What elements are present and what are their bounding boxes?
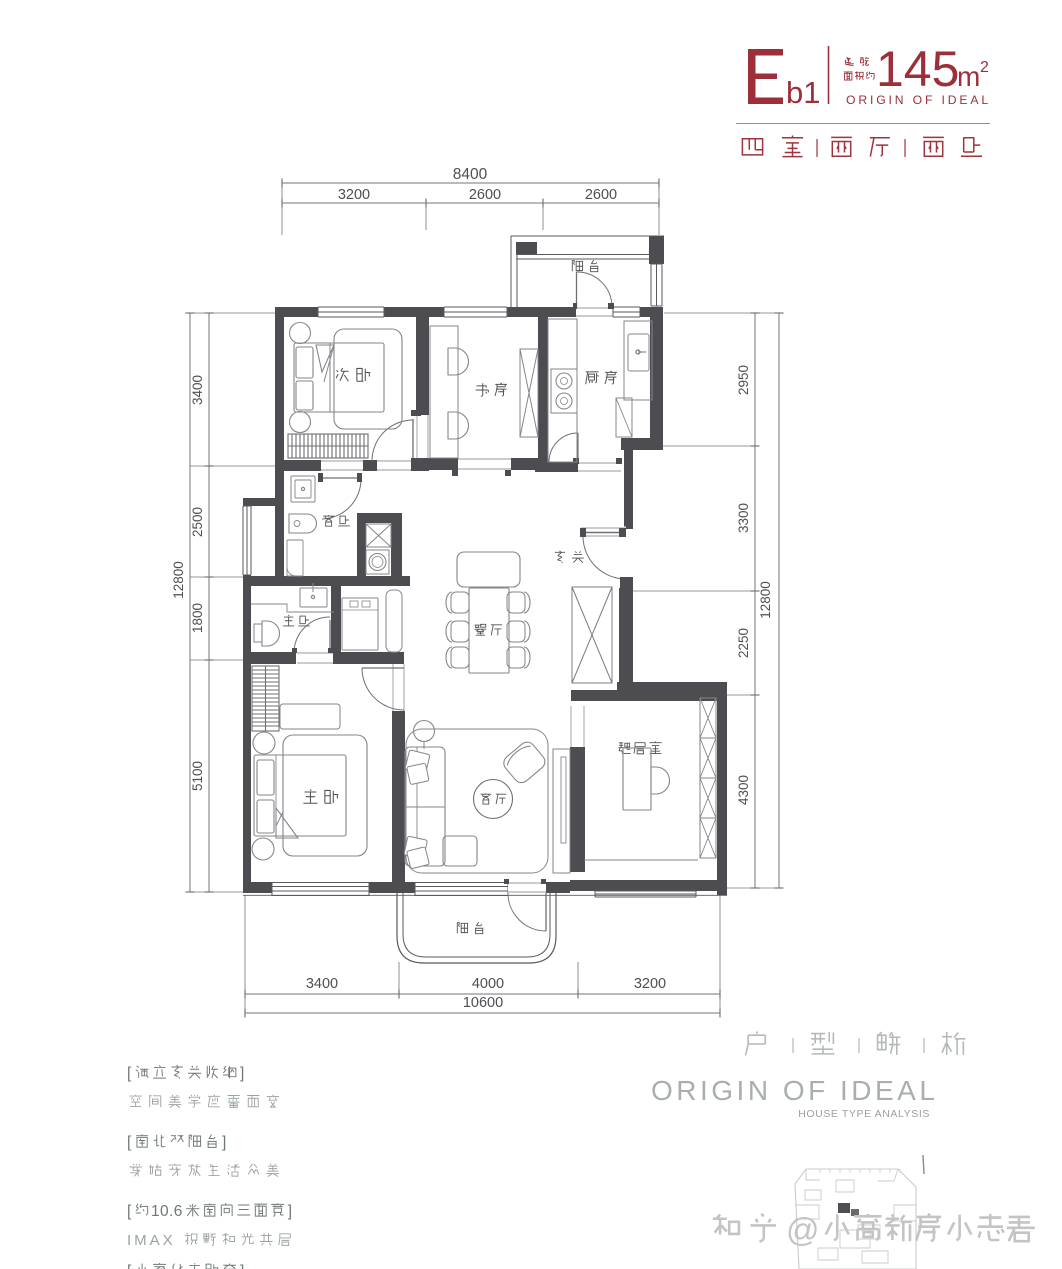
svg-text:1800: 1800 xyxy=(190,603,205,633)
svg-text:m: m xyxy=(957,61,980,92)
svg-text:3300: 3300 xyxy=(736,503,751,533)
svg-text:]: ] xyxy=(288,1203,292,1220)
svg-text:IMAX: IMAX xyxy=(127,1232,176,1249)
svg-text:2600: 2600 xyxy=(585,187,617,203)
svg-text:10.6: 10.6 xyxy=(151,1203,183,1220)
svg-text:ORIGIN OF IDEAL: ORIGIN OF IDEAL xyxy=(846,93,991,107)
svg-text:]: ] xyxy=(240,1263,244,1269)
svg-text:[: [ xyxy=(127,1065,133,1082)
svg-text:5100: 5100 xyxy=(190,761,205,791)
svg-text:[: [ xyxy=(127,1203,132,1220)
svg-text:2600: 2600 xyxy=(469,187,501,203)
svg-text:2950: 2950 xyxy=(736,365,751,395)
svg-text:145: 145 xyxy=(876,41,959,97)
svg-text:2: 2 xyxy=(980,59,989,76)
svg-text:]: ] xyxy=(240,1065,244,1082)
svg-text:10600: 10600 xyxy=(463,995,503,1011)
svg-text:3400: 3400 xyxy=(306,976,338,992)
svg-text:]: ] xyxy=(222,1134,226,1151)
svg-text:3200: 3200 xyxy=(338,187,370,203)
svg-text:8400: 8400 xyxy=(453,166,488,183)
svg-text:4000: 4000 xyxy=(472,976,504,992)
svg-text:12800: 12800 xyxy=(171,561,186,599)
svg-text:ORIGIN OF IDEAL: ORIGIN OF IDEAL xyxy=(651,1075,938,1106)
svg-text:@: @ xyxy=(786,1211,820,1248)
svg-text:HOUSE TYPE ANALYSIS: HOUSE TYPE ANALYSIS xyxy=(798,1108,930,1120)
svg-text:2250: 2250 xyxy=(736,628,751,658)
svg-text:4300: 4300 xyxy=(736,775,751,805)
svg-text:12800: 12800 xyxy=(758,581,773,619)
svg-text:[: [ xyxy=(127,1134,132,1151)
svg-text:3400: 3400 xyxy=(190,375,205,405)
svg-text:[: [ xyxy=(127,1263,132,1269)
svg-text:b1: b1 xyxy=(786,75,820,110)
svg-text:3200: 3200 xyxy=(634,976,666,992)
svg-text:2500: 2500 xyxy=(190,507,205,537)
